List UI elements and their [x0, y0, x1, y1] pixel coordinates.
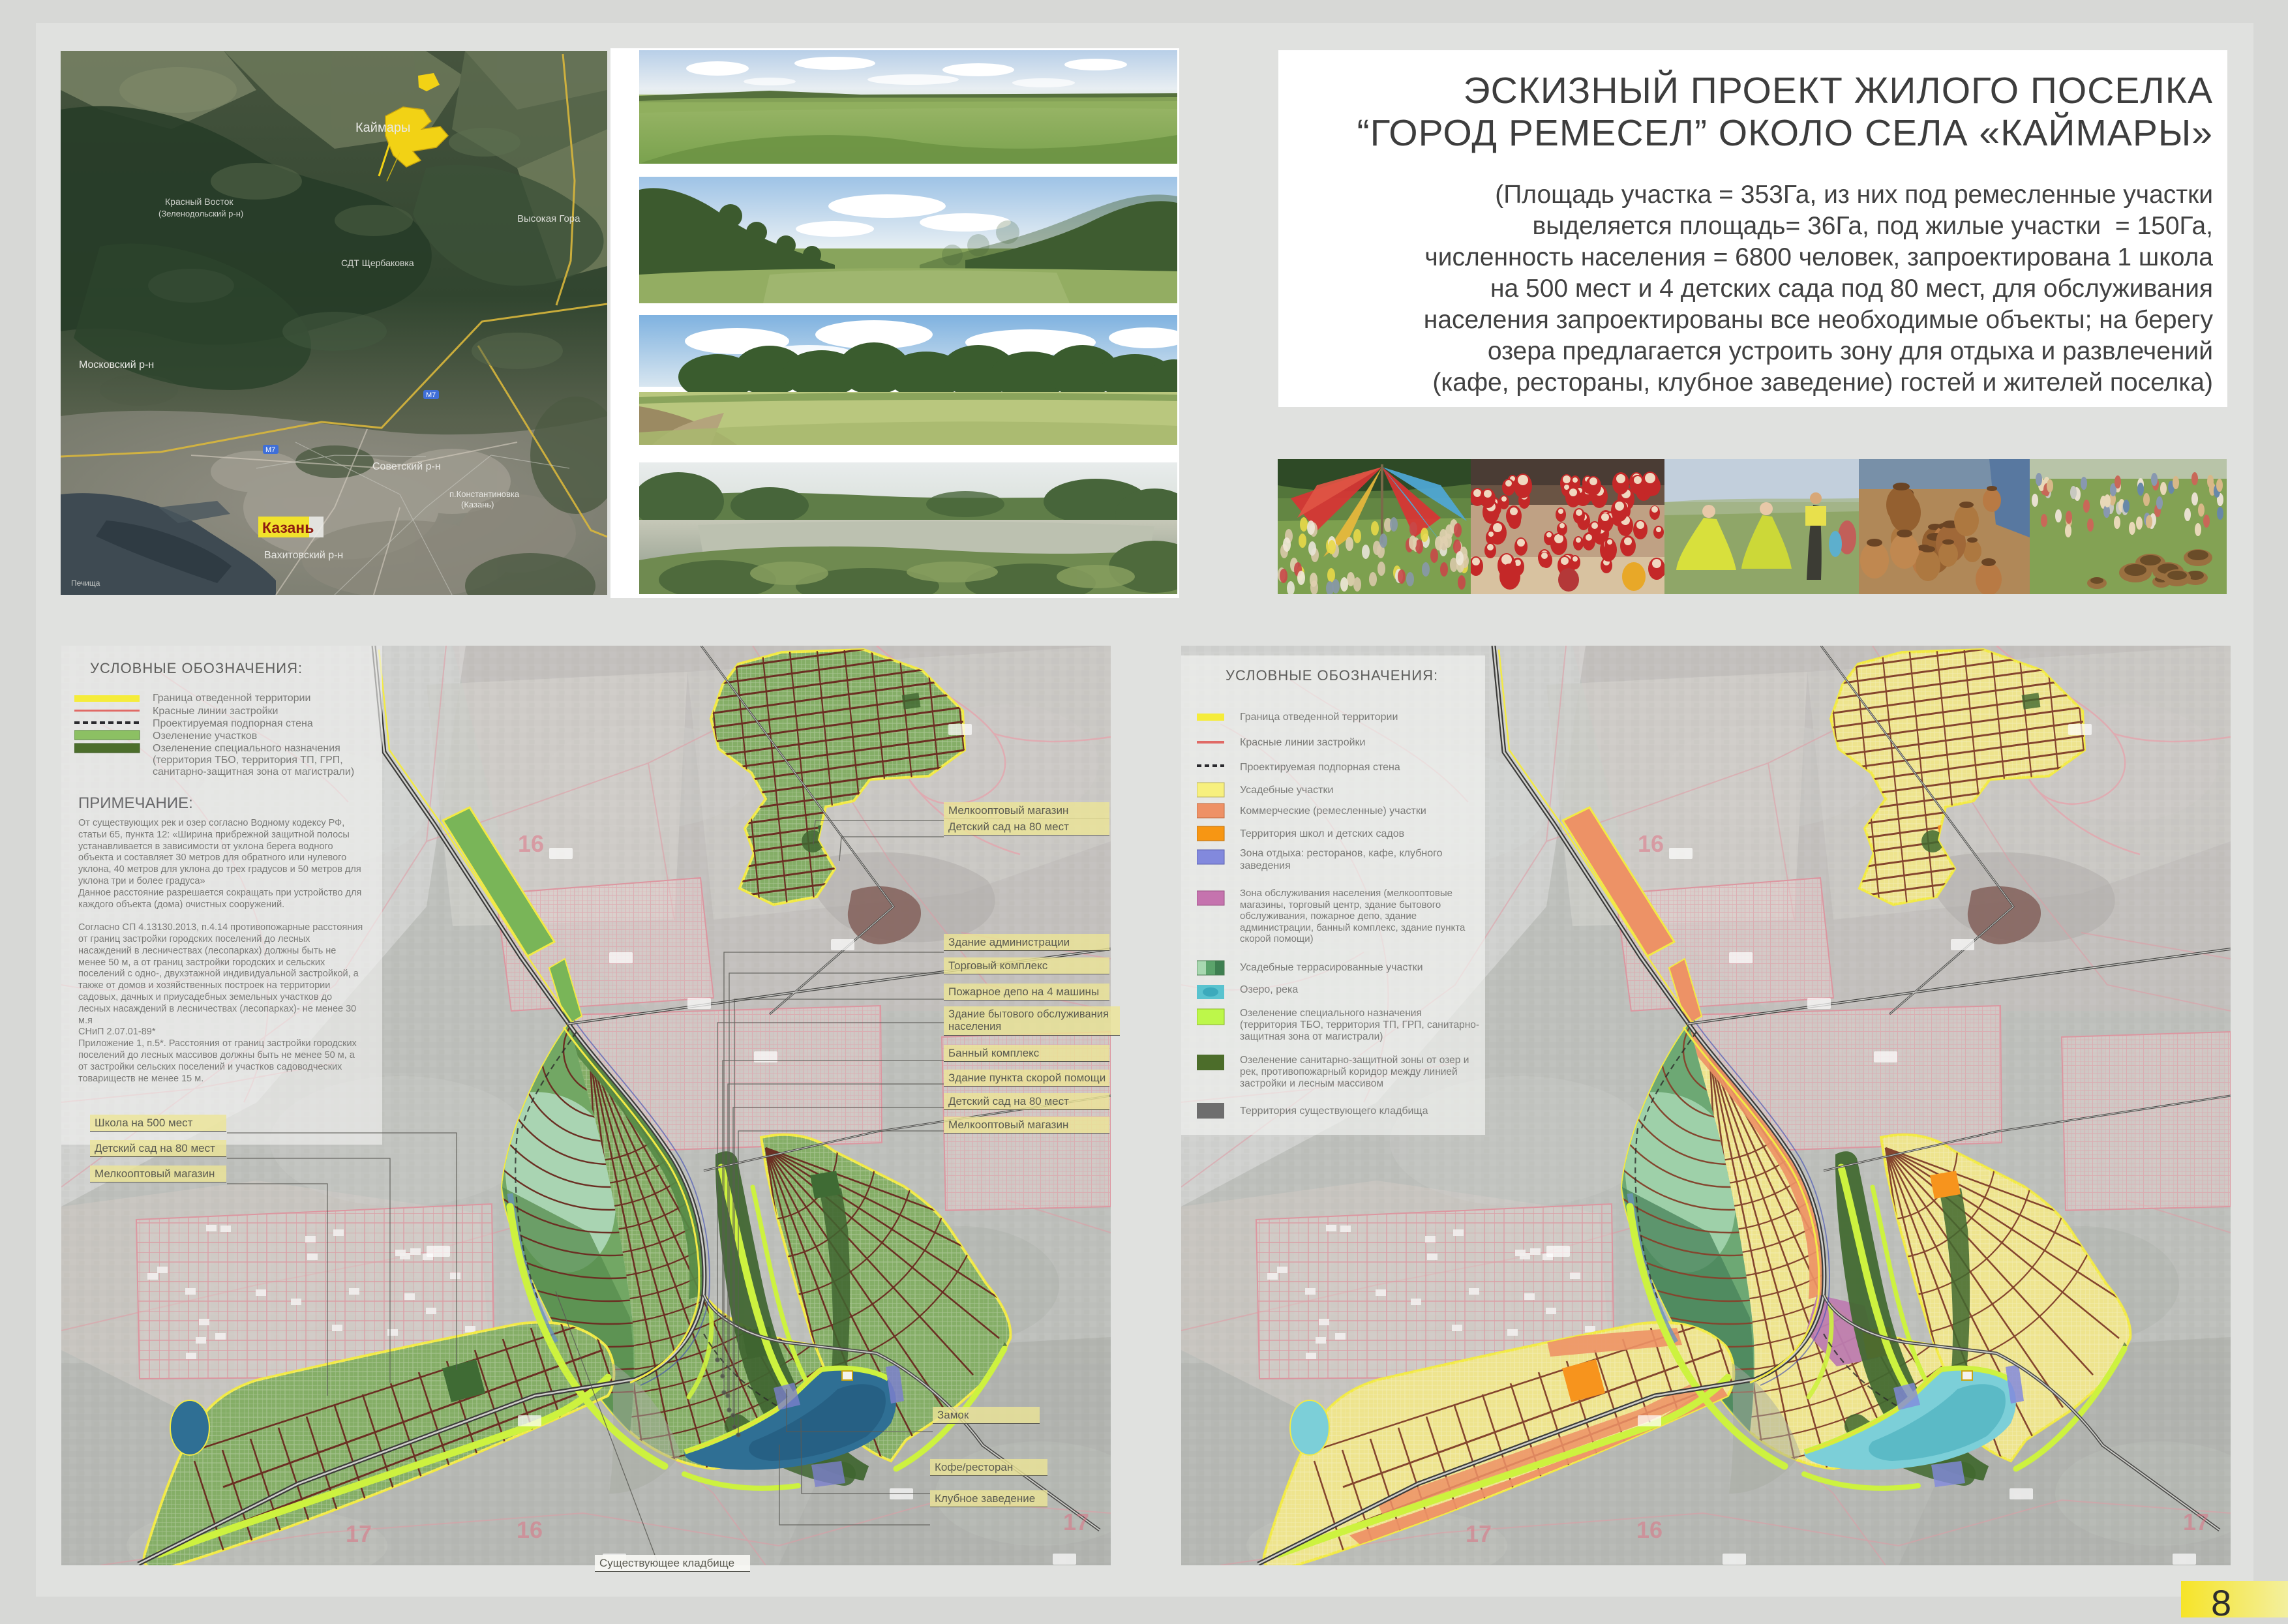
svg-text:Каймары: Каймары: [355, 121, 410, 135]
svg-text:(Зеленодольский р-н): (Зеленодольский р-н): [158, 209, 243, 218]
svg-text:Красный Восток: Красный Восток: [165, 196, 233, 207]
svg-text:Московский р-н: Московский р-н: [79, 359, 154, 370]
svg-text:М7: М7: [426, 391, 436, 399]
svg-text:Советский р-н: Советский р-н: [372, 461, 441, 472]
svg-text:(Казань): (Казань): [461, 500, 494, 509]
svg-text:Печища: Печища: [71, 579, 100, 588]
svg-text:п.Константиновка: п.Константиновка: [449, 489, 520, 499]
svg-text:М7: М7: [265, 446, 275, 454]
svg-text:СДТ Щербаковка: СДТ Щербаковка: [341, 258, 414, 268]
svg-text:16: 16: [1636, 1516, 1663, 1543]
svg-text:Казань: Казань: [262, 519, 314, 536]
svg-text:17: 17: [2183, 1509, 2209, 1535]
svg-text:Вахитовский р-н: Вахитовский р-н: [264, 550, 343, 561]
svg-text:Высокая Гора: Высокая Гора: [517, 213, 580, 224]
svg-text:17: 17: [1466, 1520, 1492, 1547]
svg-text:16: 16: [1638, 830, 1664, 857]
